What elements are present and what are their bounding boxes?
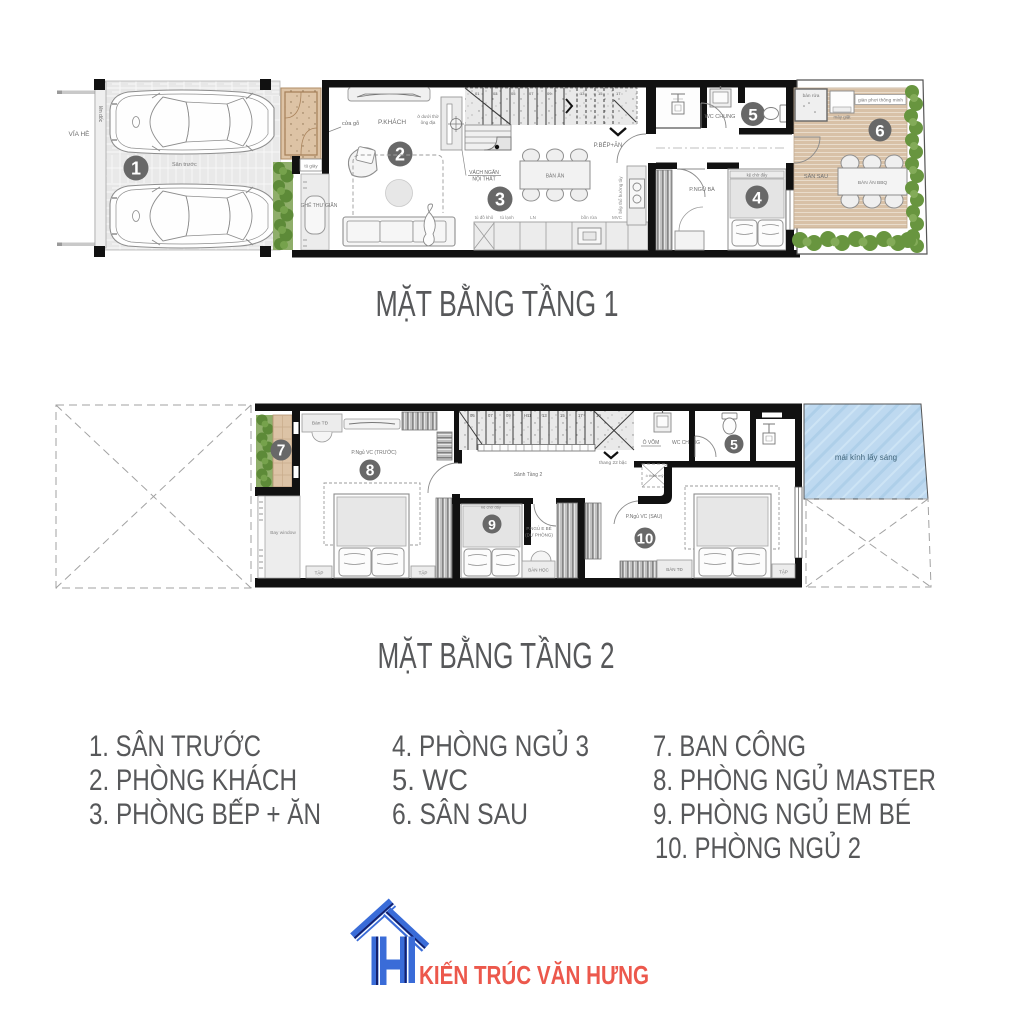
svg-text:5: 5	[748, 105, 757, 124]
svg-text:SÂN SAU: SÂN SAU	[804, 173, 828, 180]
svg-text:Ô VÕM: Ô VÕM	[643, 439, 660, 446]
svg-text:9: 9	[488, 516, 496, 532]
svg-text:07: 07	[488, 413, 493, 418]
svg-text:13: 13	[580, 91, 585, 96]
svg-text:Bay window: Bay window	[270, 530, 296, 536]
svg-text:TẬP: TẬP	[315, 570, 324, 576]
svg-text:6: 6	[875, 121, 884, 140]
svg-text:NỘI THẤT: NỘI THẤT	[472, 176, 495, 183]
svg-text:15: 15	[560, 413, 565, 418]
svg-text:01: 01	[475, 91, 480, 96]
svg-text:P.NGỦ BÀ: P.NGỦ BÀ	[689, 186, 715, 193]
svg-text:2: 2	[395, 145, 405, 165]
svg-text:kệ chờ đẩy: kệ chờ đẩy	[747, 173, 769, 178]
svg-text:P.BẾP+ĂN: P.BẾP+ĂN	[594, 142, 623, 149]
svg-text:ông địa: ông địa	[421, 120, 436, 125]
svg-text:09: 09	[547, 91, 552, 96]
svg-text:WC CHUNG: WC CHUNG	[672, 440, 700, 446]
svg-text:(DỰ PHÒNG): (DỰ PHÒNG)	[525, 532, 553, 538]
svg-text:P.Ngủ VC (SAU): P.Ngủ VC (SAU)	[626, 513, 663, 520]
svg-text:GHẾ THƯ GIÃN: GHẾ THƯ GIÃN	[301, 202, 338, 209]
svg-text:TẬP: TẬP	[779, 569, 788, 575]
svg-text:8. PHÒNG NGỦ MASTER: 8. PHÒNG NGỦ MASTER	[653, 763, 936, 797]
svg-text:1. SÂN TRƯỚC: 1. SÂN TRƯỚC	[89, 730, 261, 763]
svg-text:WC CHUNG: WC CHUNG	[705, 114, 736, 120]
svg-text:VÁCH NGĂN: VÁCH NGĂN	[469, 169, 499, 176]
svg-text:10. PHÒNG NGỦ 2: 10. PHÒNG NGỦ 2	[655, 831, 861, 865]
svg-text:17: 17	[578, 413, 583, 418]
svg-text:P.NGỦ E BÉ: P.NGỦ E BÉ	[526, 525, 551, 531]
svg-text:9. PHÒNG NGỦ EM BÉ: 9. PHÒNG NGỦ EM BÉ	[653, 797, 911, 831]
svg-text:BÀN HỌC: BÀN HỌC	[528, 567, 549, 573]
svg-text:VỈA HÈ: VỈA HÈ	[69, 129, 91, 138]
svg-text:P.Ngủ VC (TRƯỚC): P.Ngủ VC (TRƯỚC)	[351, 449, 396, 456]
svg-text:Sân trước: Sân trước	[172, 162, 197, 168]
svg-text:MẶT BẰNG TẦNG 1: MẶT BẰNG TẦNG 1	[376, 283, 619, 324]
svg-text:tủ giày: tủ giày	[304, 163, 318, 169]
svg-text:MVC: MVC	[612, 215, 623, 220]
svg-text:H11: H11	[524, 413, 532, 418]
svg-text:ở dưới thờ: ở dưới thờ	[417, 113, 439, 119]
svg-text:10: 10	[637, 531, 654, 548]
svg-text:13: 13	[542, 413, 547, 418]
svg-text:máy giặt: máy giặt	[833, 115, 851, 120]
svg-text:3. PHÒNG BẾP + ĂN: 3. PHÒNG BẾP + ĂN	[89, 797, 321, 831]
svg-text:mái kính lấy sáng: mái kính lấy sáng	[835, 453, 897, 462]
svg-text:P.KHÁCH: P.KHÁCH	[378, 117, 406, 126]
svg-text:2. PHÒNG KHÁCH: 2. PHÒNG KHÁCH	[89, 764, 297, 797]
svg-text:7. BAN CÔNG: 7. BAN CÔNG	[653, 729, 806, 763]
svg-text:tủ lạnh: tủ lạnh	[500, 214, 514, 220]
svg-text:8: 8	[366, 463, 375, 480]
svg-text:kệ chờ đẩy: kệ chờ đẩy	[481, 505, 501, 510]
svg-text:09: 09	[506, 413, 511, 418]
svg-text:cửa gỗ: cửa gỗ	[342, 120, 359, 127]
svg-text:TẬP: TẬP	[419, 570, 428, 576]
svg-text:5. WC: 5. WC	[392, 764, 468, 797]
svg-text:3: 3	[495, 190, 505, 210]
svg-text:thang 22 bậc: thang 22 bậc	[599, 460, 627, 466]
svg-text:Bàn TĐ: Bàn TĐ	[312, 421, 329, 427]
svg-text:tủ đồ khô: tủ đồ khô	[475, 214, 494, 220]
svg-text:03: 03	[493, 91, 498, 96]
svg-text:BÀN TĐ: BÀN TĐ	[666, 566, 683, 572]
svg-text:KIẾN TRÚC VĂN HƯNG: KIẾN TRÚC VĂN HƯNG	[419, 960, 649, 990]
svg-text:15: 15	[598, 91, 603, 96]
svg-text:bồn rửa: bồn rửa	[581, 214, 597, 220]
svg-text:5: 5	[730, 436, 738, 452]
svg-text:05: 05	[470, 413, 475, 418]
svg-text:BÀN ĂN: BÀN ĂN	[546, 173, 565, 180]
svg-text:4. PHÒNG NGỦ 3: 4. PHÒNG NGỦ 3	[392, 729, 589, 763]
svg-text:7: 7	[277, 443, 286, 460]
svg-text:BÀN ĂN BBQ: BÀN ĂN BBQ	[858, 179, 888, 186]
svg-text:lên dốc: lên dốc	[97, 106, 103, 123]
svg-text:4: 4	[752, 188, 762, 207]
svg-text:MẶT BẰNG TẦNG 2: MẶT BẰNG TẦNG 2	[378, 635, 615, 676]
svg-text:ô thẩm mỹ: ô thẩm mỹ	[646, 474, 664, 478]
svg-text:LN: LN	[530, 215, 536, 220]
svg-text:bếp thổ hướng tây: bếp thổ hướng tây	[617, 176, 623, 214]
svg-text:Sảnh Tầng 2: Sảnh Tầng 2	[514, 472, 543, 478]
svg-text:giàn phơi thông minh: giàn phơi thông minh	[858, 98, 903, 104]
svg-text:17: 17	[616, 91, 621, 96]
svg-text:1: 1	[131, 159, 141, 179]
svg-text:05: 05	[511, 91, 516, 96]
svg-text:19: 19	[596, 413, 601, 418]
svg-text:6. SÂN SAU: 6. SÂN SAU	[392, 798, 528, 831]
svg-text:bàn rửa: bàn rửa	[803, 92, 820, 99]
svg-text:07: 07	[529, 91, 534, 96]
